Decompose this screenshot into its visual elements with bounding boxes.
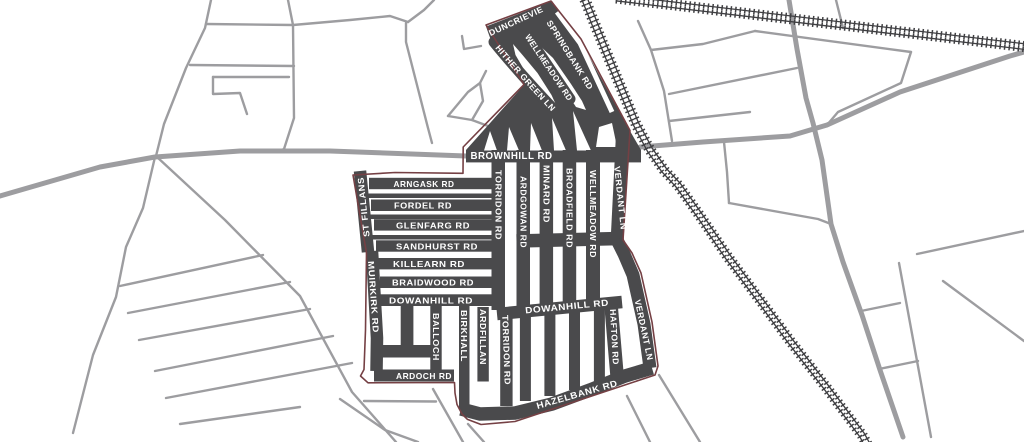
svg-text:SANDHURST RD: SANDHURST RD — [396, 241, 478, 251]
svg-text:BIRKHALL: BIRKHALL — [459, 310, 469, 362]
svg-text:GLENFARG RD: GLENFARG RD — [396, 220, 470, 230]
svg-text:FORDEL RD: FORDEL RD — [394, 201, 452, 211]
svg-text:TORRIDON RD: TORRIDON RD — [494, 170, 504, 240]
svg-text:WELLMEADOW RD: WELLMEADOW RD — [588, 170, 598, 258]
svg-text:BRAIDWOOD RD: BRAIDWOOD RD — [392, 278, 474, 288]
svg-text:ARDFILLAN: ARDFILLAN — [478, 309, 488, 365]
svg-text:ARNGASK RD: ARNGASK RD — [394, 179, 455, 189]
svg-text:ARDGOWAN RD: ARDGOWAN RD — [519, 176, 529, 248]
svg-text:BROADFIELD RD: BROADFIELD RD — [565, 168, 575, 248]
svg-text:BALLOCH: BALLOCH — [431, 313, 441, 361]
svg-text:ARDOCH RD: ARDOCH RD — [396, 371, 452, 381]
svg-text:KILLEARN RD: KILLEARN RD — [393, 259, 465, 269]
svg-text:DOWANHILL RD: DOWANHILL RD — [389, 296, 473, 306]
svg-text:MINARD RD: MINARD RD — [542, 165, 552, 223]
svg-text:BROWNHILL RD: BROWNHILL RD — [471, 151, 553, 162]
